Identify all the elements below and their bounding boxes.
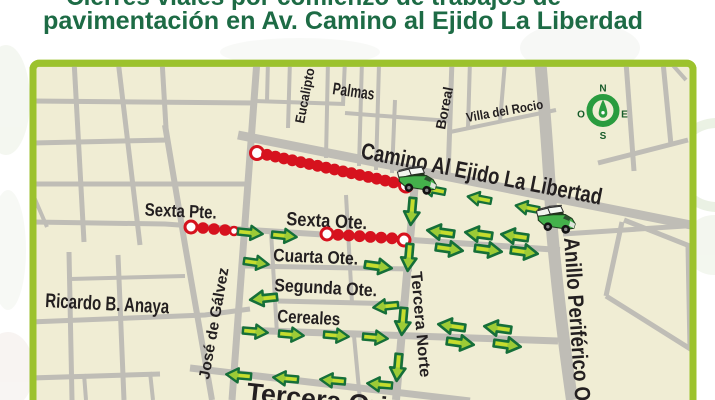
svg-text:pavimentación en Av. Camino al: pavimentación en Av. Camino al Ejido La …: [43, 7, 643, 35]
svg-text:Cereales: Cereales: [277, 306, 341, 329]
svg-text:S: S: [600, 131, 607, 142]
svg-text:O: O: [577, 110, 585, 121]
svg-text:Cuarta Ote.: Cuarta Ote.: [273, 245, 359, 269]
svg-text:Sexta Pte.: Sexta Pte.: [144, 200, 217, 223]
svg-text:E: E: [621, 110, 628, 121]
svg-text:N: N: [599, 84, 606, 95]
